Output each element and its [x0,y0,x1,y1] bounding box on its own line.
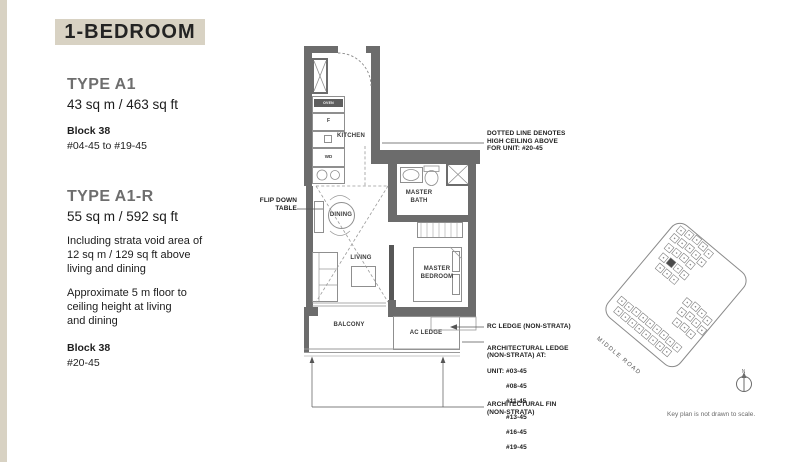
wall-divider-stub [388,300,396,307]
room-label-balcony: BALCONY [332,322,366,330]
oven-label-band: OVEN [314,99,343,107]
wall-bath-left [388,164,397,215]
kitchen-sink-hob [312,167,345,184]
room-label-master-bath: MASTER BATH [398,190,440,206]
callout-arch-ledge-title: ARCHITECTURAL LEDGE (NON-STRATA) AT: [487,345,569,360]
flip-down-table [314,201,324,233]
fridge-label: F [312,118,345,124]
room-label-dining: DINING [327,212,355,220]
wall-right-upper [371,46,380,150]
ac-shaft [446,163,470,186]
wardrobe [417,222,463,238]
type-a1r-name: TYPE A1-R [67,188,247,206]
type-a1-area: 43 sq m / 463 sq ft [67,97,247,112]
coffee-table [351,266,376,287]
type-a1-spec: TYPE A1 43 sq m / 463 sq ft Block 38 #04… [67,76,247,152]
wall-balcony-pillar [309,307,318,316]
room-label-ac-ledge: AC LEDGE [401,330,451,338]
key-plan-units [611,223,750,365]
type-a1-units: #04-45 to #19-45 [67,140,247,152]
sofa [312,252,338,302]
callout-arch-ledge-unit: UNIT: #03-45 [487,368,569,376]
page-edge-accent [0,0,7,462]
type-a1-name: TYPE A1 [67,76,247,94]
room-label-kitchen: KITCHEN [336,133,366,141]
callout-arch-fin: ARCHITECTURAL FIN (NON-STRATA) [487,401,556,416]
kitchen-cabinet-inner [324,135,332,143]
wall-bath-top-band [371,150,480,164]
callout-arch-ledge: ARCHITECTURAL LEDGE (NON-STRATA) AT: UNI… [487,337,569,460]
bath-vanity [400,167,423,183]
services-riser [312,58,328,94]
key-plan-note: Key plan is not drawn to scale. [667,411,755,418]
north-label: N [742,369,746,375]
bedroom-sliding-door-panel [389,245,394,305]
callout-high-ceiling: DOTTED LINE DENOTES HIGH CEILING ABOVE F… [487,130,565,153]
type-a1r-note-strata: Including strata void area of 12 sq m / … [67,235,247,276]
north-arrow-icon: N [737,369,752,392]
road-label: MIDDLE ROAD [595,336,642,377]
page-title: 1-BEDROOM [64,21,195,44]
wall-left-kitchen [304,46,312,186]
type-a1r-units: #20-45 [67,357,247,369]
type-a1r-block: Block 38 [67,342,247,354]
key-plan-site-boundary [601,219,750,371]
callout-arch-ledge-unit: #19-45 [487,444,569,452]
type-a1r-area: 55 sq m / 592 sq ft [67,209,247,224]
type-a1r-spec: TYPE A1-R 55 sq m / 592 sq ft Including … [67,188,247,369]
page-title-banner: 1-BEDROOM [55,19,205,45]
callout-arch-ledge-unit: #08-45 [487,383,569,391]
key-plan: N [583,183,793,428]
room-label-living: LIVING [347,255,375,263]
type-a1-block: Block 38 [67,125,247,137]
callout-arch-ledge-unit: #16-45 [487,429,569,437]
wall-bath-bottom [388,215,468,222]
callout-rc-ledge: RC LEDGE (NON-STRATA) [487,323,571,331]
entrance-door-arc [338,53,371,86]
washer-dryer-label: WD [312,154,345,159]
brochure-page: 1-BEDROOM TYPE A1 43 sq m / 463 sq ft Bl… [0,0,800,462]
room-label-master-bedroom: MASTER BEDROOM [408,266,466,282]
callout-flip-down-table: FLIP DOWN TABLE [250,197,297,212]
type-a1r-note-ceiling: Approximate 5 m floor to ceiling height … [67,287,247,328]
